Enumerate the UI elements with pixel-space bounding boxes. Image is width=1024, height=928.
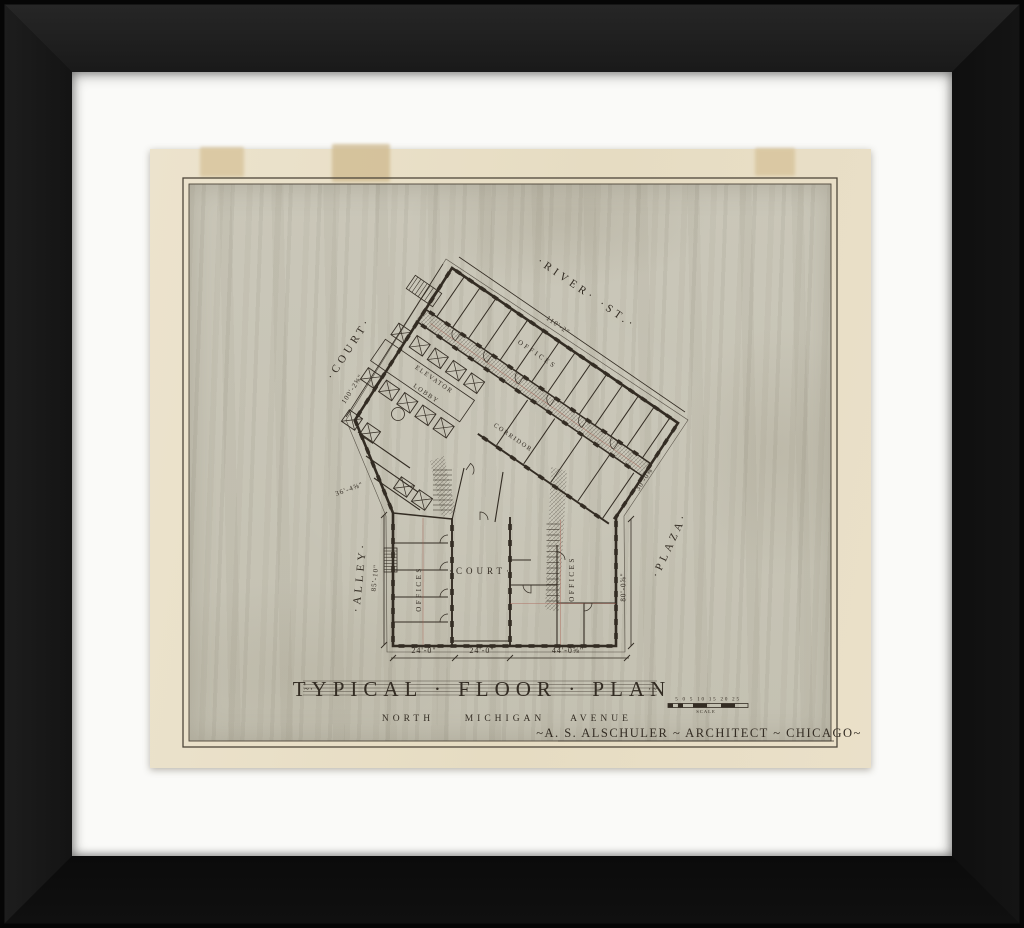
wall-pier [450,573,454,579]
wall-pier [399,644,405,648]
elevator-shaft [397,392,418,413]
wall-pier [450,525,454,531]
wall-pier [391,566,395,572]
wall-pier [529,644,535,648]
wall-pier [508,540,512,546]
elevator-shaft [411,490,432,511]
alley-dimension: 85'-10" [370,564,381,592]
wall-pier [382,489,388,496]
wall-pier [438,644,444,648]
stair-left-edge [384,548,397,572]
offices-label-right: OFFICES [568,556,576,602]
wall-pier [412,644,418,648]
door-swing [440,562,448,570]
scale-label: SCALE [696,709,716,714]
alley-label: ·ALLEY· [350,541,369,613]
elevator-shaft [433,417,454,438]
wall-pier [450,557,454,563]
elevator-shaft [445,360,466,381]
wall-pier [391,608,395,614]
door-swing [523,585,531,593]
wall-pier [594,644,600,648]
wall-pier [451,644,457,648]
wall-pier [365,447,371,454]
wall-pier [425,644,431,648]
wall-pier [614,549,618,555]
elevator-shaft [409,335,430,356]
wall-pier [450,541,454,547]
floor-plan-drawing: ·RIVER· ·ST.· 110'-2" ·COURT· 100'-2⅝" ·… [0,0,1024,928]
court-street-label: ·COURT· [325,315,374,382]
wall-pier [508,636,512,642]
sheet-title: TYPICAL · FLOOR · PLAN [293,677,672,701]
sheet-border-outer [183,178,837,747]
offices-label-upper: OFFICES [516,338,558,370]
wall-pier [391,594,395,600]
subtitle-north: NORTH [382,714,434,724]
wall-pier [450,637,454,643]
plaza-label: ·PLAZA· [650,510,691,579]
wall-pier [508,556,512,562]
wall-pier [391,524,395,530]
wall-pier [555,644,561,648]
wall-pier [508,572,512,578]
wall-pier [391,622,395,628]
wall-pier [516,644,522,648]
wall-pier [614,605,618,611]
architect-credit: ~A. S. ALSCHULER ~ ARCHITECT ~ CHICAGO~ [536,726,862,740]
scale-numbers: 5 0 5 10 15 20 25 [675,698,741,703]
wall-pier [508,604,512,610]
wall-pier [477,644,483,648]
wall-pier [614,591,618,597]
left-corridor-hatch [430,456,456,517]
wall-pier [508,588,512,594]
subtitle-avenue: AVENUE [570,714,632,724]
elevator-shaft [464,373,485,394]
subtitle-michigan: MICHIGAN [465,714,546,724]
door-swing [584,603,592,611]
elevator-shaft [427,348,448,369]
wall-pier [614,633,618,639]
wall-pier [614,521,618,527]
elevator-shaft [415,405,436,426]
wall-pier [391,538,395,544]
door-swing [440,614,448,622]
wall-pier [503,644,509,648]
wall-pier [607,644,613,648]
wall-pier [490,644,496,648]
wall-pier [581,644,587,648]
wall-pier [614,619,618,625]
wall-pier [464,644,470,648]
red-construction-lines [423,324,641,645]
wall-pier [614,535,618,541]
wall-pier [450,605,454,611]
wall-pier [376,475,382,482]
wall-pier [614,563,618,569]
wall-pier [542,644,548,648]
offices-label-left: OFFICES [415,566,423,612]
left-diagonal-dimension: 36'-4⅝" [334,480,364,498]
scale-bar: 5 0 5 10 15 20 25 SCALE [668,698,748,715]
door-swing [466,463,477,474]
door-swing [480,512,488,520]
door-swing [440,589,448,597]
wall-pier [614,577,618,583]
wall-pier [450,621,454,627]
wall-pier [391,580,395,586]
plaza-vertical-dimension: 80'-0⅝" [620,572,628,601]
wall-pier [508,620,512,626]
wall-pier [391,636,395,642]
elevator-shaft [379,380,400,401]
framed-floor-plan-photo: ·RIVER· ·ST.· 110'-2" ·COURT· 100'-2⅝" ·… [0,0,1024,928]
courtyard-label: ·COURT· [449,566,513,576]
wall-pier [450,589,454,595]
wall-pier [387,503,393,510]
wall-pier [508,524,512,530]
door-swing [440,535,448,543]
wall-pier [568,644,574,648]
